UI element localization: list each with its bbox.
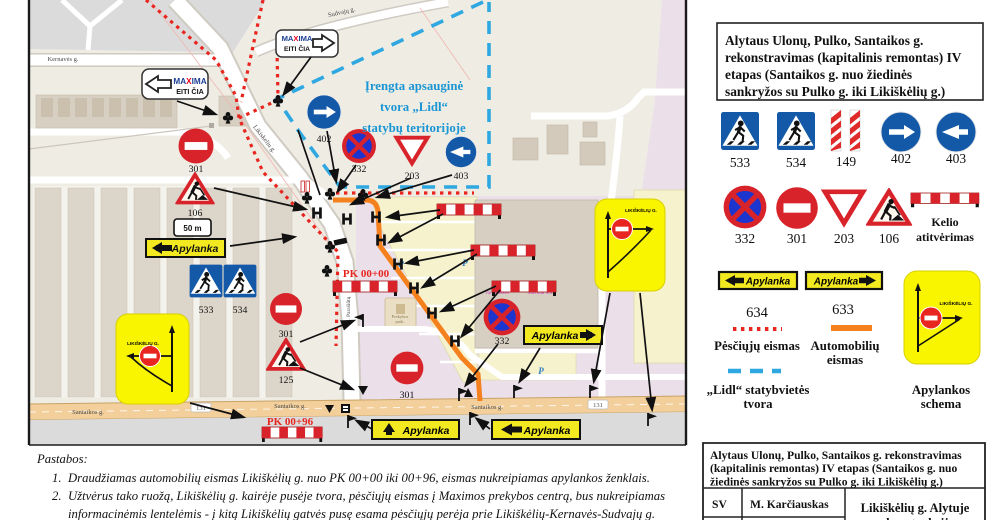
svg-text:Apylanka: Apylanka — [523, 425, 571, 437]
svg-text:Alytaus Ulonų, Pulko, Santaiko: Alytaus Ulonų, Pulko, Santaikos g. rekon… — [710, 449, 962, 462]
svg-text:203: 203 — [834, 231, 855, 246]
svg-text:Draudžiamas automobilių eismas: Draudžiamas automobilių eismas Likiškėli… — [67, 471, 650, 485]
svg-text:Kernavės g.: Kernavės g. — [47, 56, 78, 63]
svg-text:Santaikos g.: Santaikos g. — [471, 404, 503, 411]
svg-text:149: 149 — [836, 154, 857, 169]
svg-text:tvora „Lidl“: tvora „Lidl“ — [380, 100, 448, 114]
svg-text:statybų teritorijoje: statybų teritorijoje — [362, 121, 466, 135]
svg-text:MAXIMA: MAXIMA — [173, 77, 206, 86]
svg-text:P: P — [538, 366, 544, 376]
svg-text:Santaikos g.: Santaikos g. — [274, 403, 306, 410]
svg-text:1.: 1. — [52, 471, 62, 485]
svg-text:Likiškėlių g. Alytuje: Likiškėlių g. Alytuje — [861, 501, 970, 515]
svg-text:LIKIŠKĖLIŲ G.: LIKIŠKĖLIŲ G. — [625, 206, 657, 213]
svg-text:2.: 2. — [52, 489, 62, 503]
svg-text:403: 403 — [454, 171, 469, 182]
svg-text:Įrengta apsauginė: Įrengta apsauginė — [365, 79, 464, 93]
svg-text:Automobilių: Automobilių — [811, 339, 880, 353]
svg-text:rekonstravimas (kapitalinis re: rekonstravimas (kapitalinis remontas) IV — [725, 50, 962, 65]
svg-text:301: 301 — [400, 390, 415, 401]
svg-text:533: 533 — [199, 305, 214, 316]
svg-text:Pastabos:: Pastabos: — [36, 452, 88, 466]
svg-text:131: 131 — [593, 402, 603, 409]
svg-text:M. Karčiauskas: M. Karčiauskas — [750, 498, 829, 511]
svg-text:žiedinės sankryžos su Pulko g.: žiedinės sankryžos su Pulko g. iki Likiš… — [710, 476, 943, 489]
svg-text:PK 00+00: PK 00+00 — [343, 268, 390, 280]
svg-text:332: 332 — [735, 231, 755, 246]
svg-text:Santaikos g.: Santaikos g. — [72, 409, 104, 416]
svg-text:Kelio: Kelio — [931, 215, 958, 229]
svg-text:Apylanka: Apylanka — [402, 425, 450, 437]
svg-text:Užtvėrus tako ruožą, Likiškėli: Užtvėrus tako ruožą, Likiškėlių g. kairė… — [68, 489, 665, 503]
svg-text:(kapitalinis remontas) IV etap: (kapitalinis remontas) IV etapas (Santai… — [710, 462, 957, 475]
svg-text:633: 633 — [832, 302, 854, 318]
svg-text:tvora: tvora — [743, 397, 773, 411]
svg-text:schema: schema — [921, 397, 962, 411]
svg-text:50 m: 50 m — [183, 224, 201, 233]
svg-text:B. Parašiūtų: B. Parašiūtų — [346, 296, 352, 323]
svg-text:534: 534 — [786, 155, 807, 170]
svg-text:EITI ČIA: EITI ČIA — [284, 44, 310, 53]
svg-text:634: 634 — [746, 305, 769, 321]
svg-text:Apylanka: Apylanka — [745, 277, 791, 288]
svg-text:Apylanka: Apylanka — [531, 330, 579, 342]
svg-text:Apylanka: Apylanka — [813, 277, 859, 288]
svg-text:Apylankos: Apylankos — [912, 383, 970, 397]
svg-text:125: 125 — [279, 375, 294, 386]
svg-text:533: 533 — [730, 155, 751, 170]
svg-text:informacinėmis lentelėmis - į: informacinėmis lentelėmis - į kitą Likiš… — [68, 507, 655, 520]
svg-text:402: 402 — [891, 151, 911, 166]
svg-text:106: 106 — [879, 231, 900, 246]
svg-text:Pėsčiųjų eismas: Pėsčiųjų eismas — [714, 339, 800, 353]
svg-text:rekonstrukcija: rekonstrukcija — [875, 516, 955, 520]
svg-text:Apylanka: Apylanka — [171, 243, 219, 255]
svg-text:Alytaus Ulonų, Pulko, Santaiko: Alytaus Ulonų, Pulko, Santaikos g. — [725, 33, 923, 48]
svg-text:SV: SV — [712, 498, 727, 511]
svg-text:534: 534 — [233, 305, 248, 316]
svg-text:MAXIMA: MAXIMA — [282, 34, 313, 43]
svg-text:eismas: eismas — [827, 353, 863, 367]
svg-text:atitvėrimas: atitvėrimas — [916, 230, 974, 244]
svg-text:EITI ČIA: EITI ČIA — [176, 87, 204, 96]
svg-text:park.: park. — [395, 319, 404, 324]
svg-text:106: 106 — [188, 208, 203, 219]
svg-text:sankryžos su Pulko g. iki Liki: sankryžos su Pulko g. iki Likiškėlių g.) — [725, 84, 945, 99]
svg-text:LIKIŠKĖLIŲ G.: LIKIŠKĖLIŲ G. — [127, 339, 159, 346]
svg-text:etapas (Santaikos g. nuo žiedi: etapas (Santaikos g. nuo žiedinės — [725, 67, 912, 82]
svg-text:PK 00+96: PK 00+96 — [267, 416, 314, 428]
svg-text:301: 301 — [787, 231, 807, 246]
svg-text:„Lidl“ statybvietės: „Lidl“ statybvietės — [707, 383, 810, 397]
svg-text:403: 403 — [946, 151, 967, 166]
